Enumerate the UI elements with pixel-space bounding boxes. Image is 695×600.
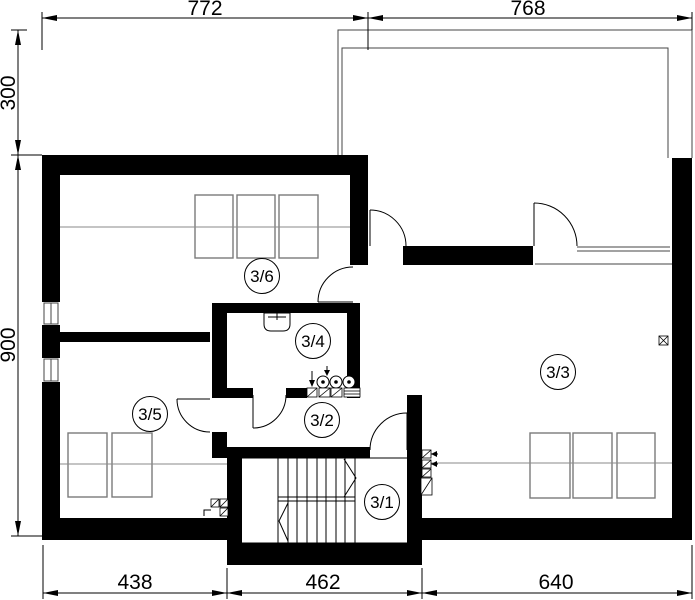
outlet-strip xyxy=(307,388,360,397)
room-label-3-4: 3/4 xyxy=(296,324,331,359)
room-label-3-3: 3/3 xyxy=(541,355,576,390)
roof-window xyxy=(617,433,655,498)
room-label-3-6: 3/6 xyxy=(245,259,280,294)
bathroom-fixtures xyxy=(264,313,360,397)
room33-north-wall xyxy=(403,246,533,265)
west-wall-lower xyxy=(42,382,60,540)
roof-window xyxy=(573,433,612,498)
electrical-symbols xyxy=(204,336,668,516)
west-wall-upper xyxy=(42,155,60,302)
walls xyxy=(42,155,692,565)
bath-north-wall xyxy=(212,303,360,313)
dim-bottom-438: 438 xyxy=(117,571,152,594)
dim-bottom-462: 462 xyxy=(305,571,340,594)
door-terrace-east xyxy=(534,203,577,246)
dim-bottom-640: 640 xyxy=(538,571,573,594)
dim-top-768: 768 xyxy=(510,0,545,20)
door-room36 xyxy=(318,267,353,302)
bath-south-wall-east xyxy=(286,388,307,398)
outlet-symbols-stairwell xyxy=(421,450,438,495)
door-room35 xyxy=(177,399,210,432)
hall-south-wall xyxy=(212,447,370,458)
dimension-left: 300 900 xyxy=(0,30,42,536)
outlet-symbol-room33 xyxy=(659,336,668,345)
dim-top-772: 772 xyxy=(187,0,222,20)
west-wall-mid xyxy=(42,325,60,358)
riser-symbols xyxy=(317,376,355,388)
outlet-symbols-room35 xyxy=(204,499,228,516)
terrace-outline xyxy=(338,30,692,264)
terrace-inner-rail xyxy=(342,48,668,158)
room-label-text: 3/1 xyxy=(370,493,394,512)
south-wall-left xyxy=(42,518,242,540)
roof-window xyxy=(68,433,107,497)
roof-window xyxy=(530,433,570,498)
room36-east-wall xyxy=(350,175,368,265)
stairwell-south-wall xyxy=(227,543,422,565)
floor-plan-drawing: 3/6 3/4 3/5 3/2 3/3 3/1 77 xyxy=(0,0,695,600)
room-label-3-2: 3/2 xyxy=(305,403,340,438)
bath-south-wall-west xyxy=(227,388,253,398)
door-stairwell xyxy=(370,413,407,450)
bath-west-wall xyxy=(212,303,227,398)
door-terrace-west xyxy=(370,210,406,246)
south-wall-right xyxy=(422,518,692,540)
roof-window xyxy=(112,433,152,497)
room-label-text: 3/3 xyxy=(546,363,570,382)
room-label-text: 3/6 xyxy=(250,267,274,286)
room-label-3-5: 3/5 xyxy=(133,397,168,432)
east-wall xyxy=(672,158,692,540)
washbasin xyxy=(264,313,290,331)
dimension-top: 772 768 xyxy=(42,0,692,50)
north-wall xyxy=(42,155,368,175)
room36-room35-wall xyxy=(60,332,210,342)
room-label-text: 3/5 xyxy=(138,405,162,424)
dim-left-900: 900 xyxy=(0,327,20,362)
room-label-text: 3/2 xyxy=(310,411,334,430)
dim-left-300: 300 xyxy=(0,75,20,110)
room-label-text: 3/4 xyxy=(301,332,325,351)
room-label-3-1: 3/1 xyxy=(365,485,400,520)
door-bathroom xyxy=(253,395,286,428)
floor-plan-svg: 3/6 3/4 3/5 3/2 3/3 3/1 77 xyxy=(0,0,695,600)
terrace-outer-edge xyxy=(338,30,692,158)
stairwell-east-wall xyxy=(407,395,422,565)
